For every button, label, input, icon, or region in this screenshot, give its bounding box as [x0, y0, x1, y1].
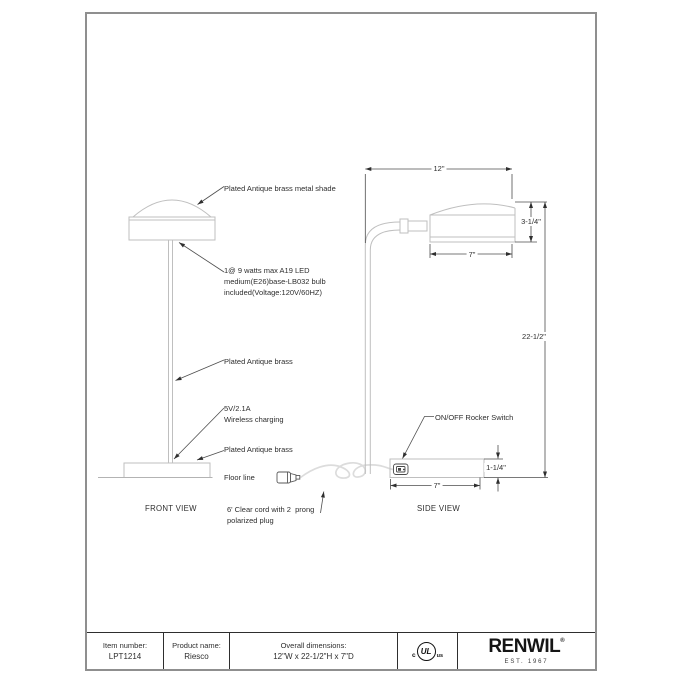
item-number-value: LPT1214 [109, 652, 141, 661]
footer-item-number-cell: Item number: LPT1214 [87, 633, 163, 669]
dim-overall-width: 12" [431, 164, 446, 173]
side-view-title: SIDE VIEW [417, 504, 460, 513]
brand-name: RENWIL [488, 637, 560, 656]
overall-dimensions-label: Overall dimensions: [281, 641, 347, 650]
rocker-switch-icon [394, 464, 409, 475]
dim-base-depth: 7" [432, 481, 443, 490]
side-view-lamp [365, 204, 515, 478]
dim-shade-depth: 7" [467, 250, 478, 259]
ul-c-mark: c [412, 652, 416, 659]
plug-icon [277, 472, 300, 483]
front-bulb-label: 1@ 9 watts max A19 LED medium(E26)base-L… [224, 265, 326, 298]
item-number-label: Item number: [103, 641, 147, 650]
front-stem-label: Plated Antique brass [224, 356, 293, 367]
technical-drawing [87, 14, 595, 669]
overall-dimensions-value: 12"W x 22-1/2"H x 7"D [273, 652, 354, 661]
product-name-label: Product name: [172, 641, 221, 650]
footer-dimensions-cell: Overall dimensions: 12"W x 22-1/2"H x 7"… [229, 633, 397, 669]
front-base-label: Plated Antique brass [224, 444, 293, 455]
footer-ul-cell: c UL us [397, 633, 457, 669]
front-shade-label: Plated Antique brass metal shade [224, 183, 336, 194]
ul-circle-mark: UL [417, 642, 436, 661]
power-cord [301, 463, 394, 478]
brand-established: EST. 1967 [505, 659, 549, 665]
registered-trademark-icon: ® [560, 638, 564, 644]
brand-logo: RENWIL ® [488, 637, 564, 656]
front-view-title: FRONT VIEW [145, 504, 197, 513]
footer-product-name-cell: Product name: Riesco [163, 633, 229, 669]
front-charging-label: 5V/2.1A Wireless charging [224, 403, 284, 425]
dim-base-height: 1-1/4" [484, 463, 508, 472]
product-name-value: Riesco [184, 652, 208, 661]
ul-us-mark: us [437, 653, 443, 659]
cord-label: 6' Clear cord with 2 prong polarized plu… [227, 504, 314, 526]
footer-bar: Item number: LPT1214 Product name: Riesc… [87, 632, 595, 669]
ul-certification-icon: c UL us [412, 642, 443, 661]
dim-shade-height: 3-1/4" [519, 217, 543, 226]
spec-sheet: Plated Antique brass metal shade 1@ 9 wa… [0, 0, 680, 680]
floor-line-label: Floor line [224, 472, 255, 483]
dim-overall-height: 22-1/2" [520, 332, 548, 341]
drawing-page-border: Plated Antique brass metal shade 1@ 9 wa… [85, 12, 597, 671]
front-view-lamp [124, 200, 215, 478]
switch-label: ON/OFF Rocker Switch [435, 412, 513, 423]
footer-brand-cell: RENWIL ® EST. 1967 [457, 633, 595, 669]
